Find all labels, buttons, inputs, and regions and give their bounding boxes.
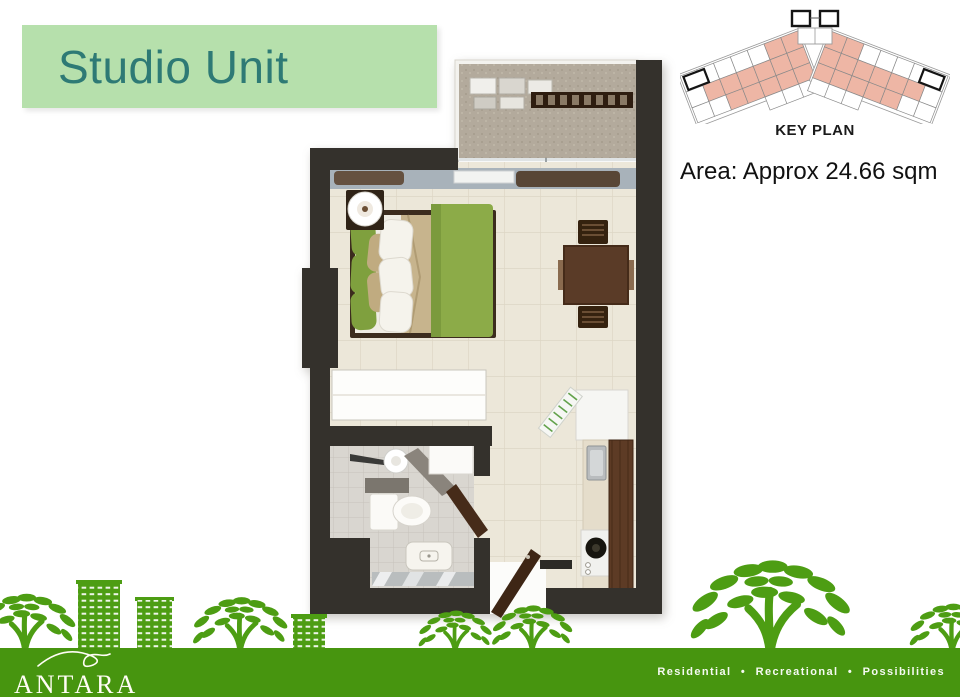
- antara-logo: ANTARA: [14, 648, 174, 697]
- logo-wordmark: ANTARA: [14, 670, 174, 697]
- tree-icon: [191, 597, 289, 653]
- page-title: Studio Unit: [22, 40, 289, 94]
- lamp-icon: [362, 206, 368, 212]
- wardrobe-counter: [332, 370, 486, 420]
- key-plan-core: [792, 11, 838, 44]
- footer-tagline: Residential • Recreational • Possibiliti…: [657, 666, 945, 678]
- building-silhouettes: [76, 580, 327, 649]
- tree-icon: [417, 610, 493, 654]
- brochure-slide: Studio Unit: [0, 0, 960, 697]
- key-plan-label: KEY PLAN: [680, 122, 950, 139]
- tree-icon: [491, 605, 574, 653]
- tree-icon: [688, 560, 853, 655]
- top-interior-band: [320, 168, 636, 189]
- ac-unit: [454, 171, 514, 183]
- key-plan: KEY PLAN: [680, 6, 950, 144]
- bath-shelf: [365, 478, 409, 493]
- floor-plan: [288, 52, 668, 624]
- area-label: Area: Approx 24.66 sqm: [680, 158, 955, 186]
- tree-icon: [908, 604, 960, 655]
- key-plan-drawing: [680, 6, 950, 124]
- night-table: [346, 190, 384, 230]
- balcony-bench: [531, 92, 633, 108]
- refrigerator: [576, 390, 628, 440]
- dining-table: [564, 246, 628, 304]
- bed-pillows: [350, 217, 414, 333]
- logo-flourish-icon: [36, 648, 114, 672]
- tree-icon: [0, 594, 77, 654]
- balcony: [455, 60, 638, 170]
